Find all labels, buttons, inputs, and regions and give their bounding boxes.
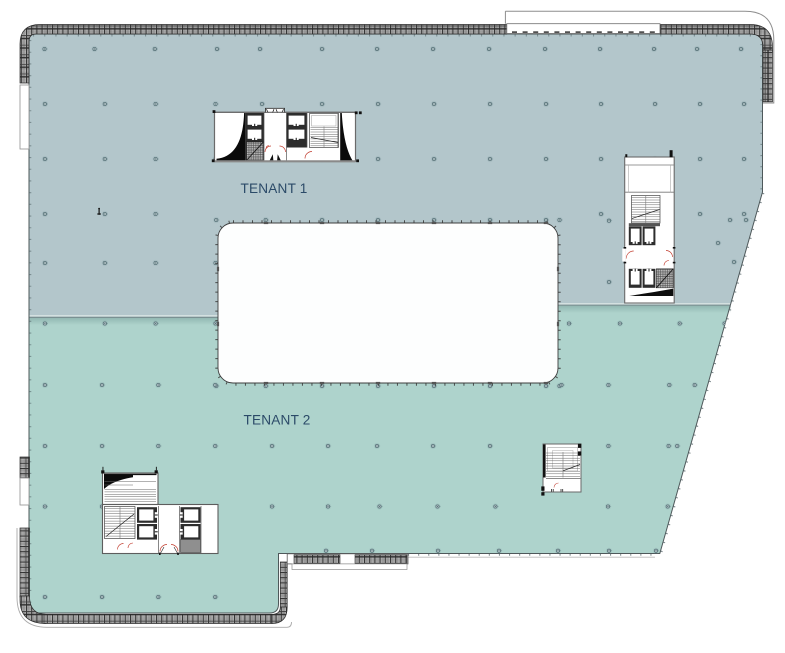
svg-text:TENANT 2: TENANT 2	[244, 413, 311, 428]
svg-text:TENANT 1: TENANT 1	[241, 181, 308, 196]
